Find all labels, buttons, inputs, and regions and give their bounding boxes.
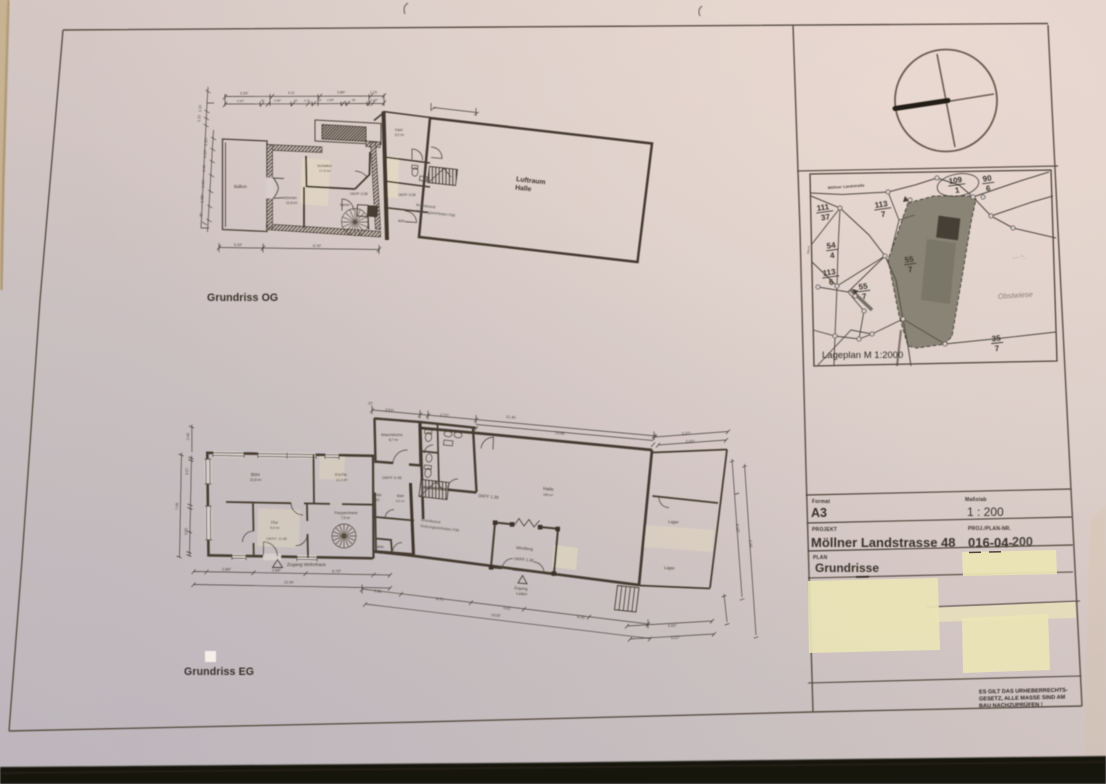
svg-text:Grundrisse: Grundrisse	[815, 561, 879, 575]
svg-text:30: 30	[352, 98, 356, 102]
svg-text:2.08⁵: 2.08⁵	[327, 98, 335, 102]
svg-text:Gast: Gast	[395, 128, 403, 132]
svg-text:Abst.: Abst.	[398, 219, 405, 223]
svg-text:5.21⁵: 5.21⁵	[671, 636, 681, 640]
svg-text:2.40: 2.40	[748, 540, 753, 548]
svg-text:2.88⁵: 2.88⁵	[222, 568, 231, 572]
svg-text:30: 30	[199, 213, 203, 217]
svg-text:Schlafen: Schlafen	[317, 164, 332, 168]
svg-text:OKFF 0.45: OKFF 0.45	[382, 475, 402, 480]
svg-text:Grundriss EG: Grundriss EG	[184, 666, 254, 678]
svg-text:5.33⁵: 5.33⁵	[234, 243, 243, 247]
svg-text:30: 30	[261, 99, 265, 103]
svg-text:5.02⁵: 5.02⁵	[686, 439, 696, 444]
svg-text:Küche: Küche	[335, 472, 348, 477]
svg-text:Möllner Landstrasse 48: Möllner Landstrasse 48	[811, 535, 956, 550]
svg-text:9,2 m²: 9,2 m²	[395, 133, 404, 137]
svg-text:Kamin: Kamin	[340, 203, 350, 207]
svg-text:3.53⁵: 3.53⁵	[385, 408, 395, 413]
svg-text:37: 37	[820, 212, 831, 222]
svg-text:Balkon: Balkon	[234, 184, 247, 189]
svg-text:Zimmer: Zimmer	[284, 196, 298, 200]
svg-text:A3: A3	[811, 506, 827, 520]
svg-text:12.49: 12.49	[284, 581, 294, 585]
svg-text:Büro: Büro	[251, 472, 261, 477]
svg-text:Abst.: Abst.	[377, 545, 384, 549]
svg-text:Waschküche: Waschküche	[381, 433, 403, 437]
svg-text:8.76⁵: 8.76⁵	[313, 244, 322, 248]
svg-text:22,8 m²: 22,8 m²	[250, 478, 262, 482]
svg-text:5.27⁵: 5.27⁵	[682, 431, 692, 436]
svg-text:Lager: Lager	[664, 565, 676, 571]
svg-text:6.73⁵: 6.73⁵	[332, 570, 341, 574]
svg-text:3.57: 3.57	[185, 468, 189, 475]
svg-text:4.40: 4.40	[202, 165, 206, 172]
svg-text:5.02⁵: 5.02⁵	[668, 624, 678, 628]
svg-text:17,5 m²: 17,5 m²	[319, 169, 331, 173]
svg-text:3.33⁵: 3.33⁵	[237, 99, 245, 103]
svg-text:BAU NACHZUPRÜFEN !: BAU NACHZUPRÜFEN !	[979, 701, 1043, 709]
svg-text:Halle: Halle	[543, 486, 554, 492]
svg-text:Lageplan M 1:2000: Lageplan M 1:2000	[822, 350, 903, 361]
svg-text:1.10⁵: 1.10⁵	[201, 179, 205, 188]
svg-text:PROJEKT: PROJEKT	[812, 527, 837, 533]
svg-text:1.98⁵: 1.98⁵	[200, 194, 204, 203]
svg-text:OKFF 3.08: OKFF 3.08	[350, 192, 368, 196]
svg-text:Laden: Laden	[516, 591, 528, 597]
svg-text:13.85: 13.85	[555, 431, 565, 436]
svg-text:Flur: Flur	[271, 520, 279, 525]
svg-text:7.06: 7.06	[175, 503, 179, 510]
svg-text:Treppenhaus: Treppenhaus	[334, 510, 357, 515]
svg-text:3.68⁵: 3.68⁵	[272, 569, 281, 573]
svg-text:016-04-: 016-04-	[968, 535, 1013, 550]
svg-text:2.72⁵: 2.72⁵	[440, 413, 450, 418]
svg-text:1.10: 1.10	[198, 105, 202, 112]
svg-text:10: 10	[294, 98, 298, 102]
svg-text:12,4 m²: 12,4 m²	[336, 478, 348, 482]
svg-text:30: 30	[318, 98, 322, 102]
svg-text:1.22: 1.22	[197, 115, 201, 122]
svg-text:22⁵: 22⁵	[368, 402, 374, 406]
svg-text:PROJ./PLAN-NR.: PROJ./PLAN-NR.	[968, 526, 1011, 532]
svg-text:Maßstab: Maßstab	[965, 497, 987, 503]
svg-text:1.10⁵: 1.10⁵	[204, 137, 208, 146]
svg-text:Zugang Wohnhaus: Zugang Wohnhaus	[287, 562, 326, 567]
svg-text:2.08⁵: 2.08⁵	[274, 99, 282, 103]
svg-text:OKFF -0.45: OKFF -0.45	[266, 536, 288, 541]
svg-text:Lager: Lager	[668, 519, 680, 525]
svg-text:1.23⁵: 1.23⁵	[371, 98, 379, 102]
svg-text:200: 200	[1012, 535, 1033, 549]
svg-text:9,6 m²: 9,6 m²	[270, 526, 280, 530]
svg-text:4.11: 4.11	[288, 91, 295, 95]
svg-text:3.55: 3.55	[184, 528, 188, 535]
svg-text:2.45: 2.45	[186, 433, 190, 440]
svg-text:1.23: 1.23	[370, 90, 377, 94]
svg-text:3.88⁵: 3.88⁵	[337, 91, 346, 95]
svg-text:7,9 m²: 7,9 m²	[341, 516, 350, 520]
svg-text:1.10⁵: 1.10⁵	[203, 149, 207, 158]
svg-text:Format: Format	[812, 499, 830, 505]
svg-text:12,6 m²: 12,6 m²	[286, 201, 298, 205]
svg-text:8,7 m²: 8,7 m²	[389, 438, 398, 442]
svg-text:Grundriss OG: Grundriss OG	[207, 292, 278, 304]
svg-text:35: 35	[991, 334, 1001, 344]
svg-text:OKFF 3.08: OKFF 3.08	[398, 193, 416, 197]
svg-text:1 : 200: 1 : 200	[967, 505, 1004, 519]
svg-text:3.33⁵: 3.33⁵	[240, 92, 249, 96]
svg-text:21.40: 21.40	[506, 415, 516, 420]
svg-text:5,6 m²: 5,6 m²	[396, 499, 405, 503]
svg-text:Bad: Bad	[397, 494, 404, 498]
svg-text:1.11: 1.11	[304, 98, 310, 102]
